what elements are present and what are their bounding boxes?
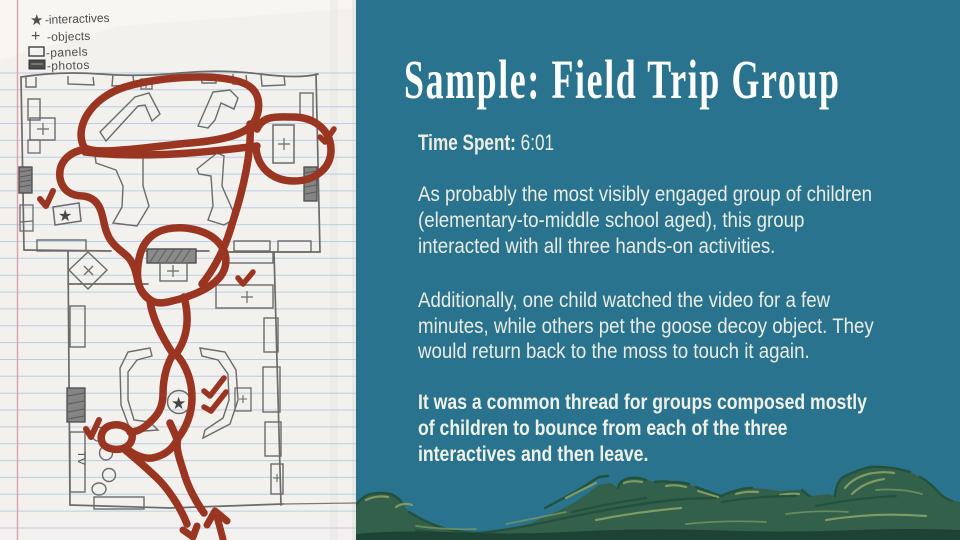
svg-text:TV: TV [75,451,87,466]
svg-text:-objects: -objects [47,29,91,44]
svg-text:-photos: -photos [47,58,90,73]
svg-text:★: ★ [30,12,43,29]
svg-text:-interactives: -interactives [45,11,110,27]
svg-text:★: ★ [58,208,72,225]
svg-text:★: ★ [171,394,186,413]
svg-text:+: + [31,28,40,45]
